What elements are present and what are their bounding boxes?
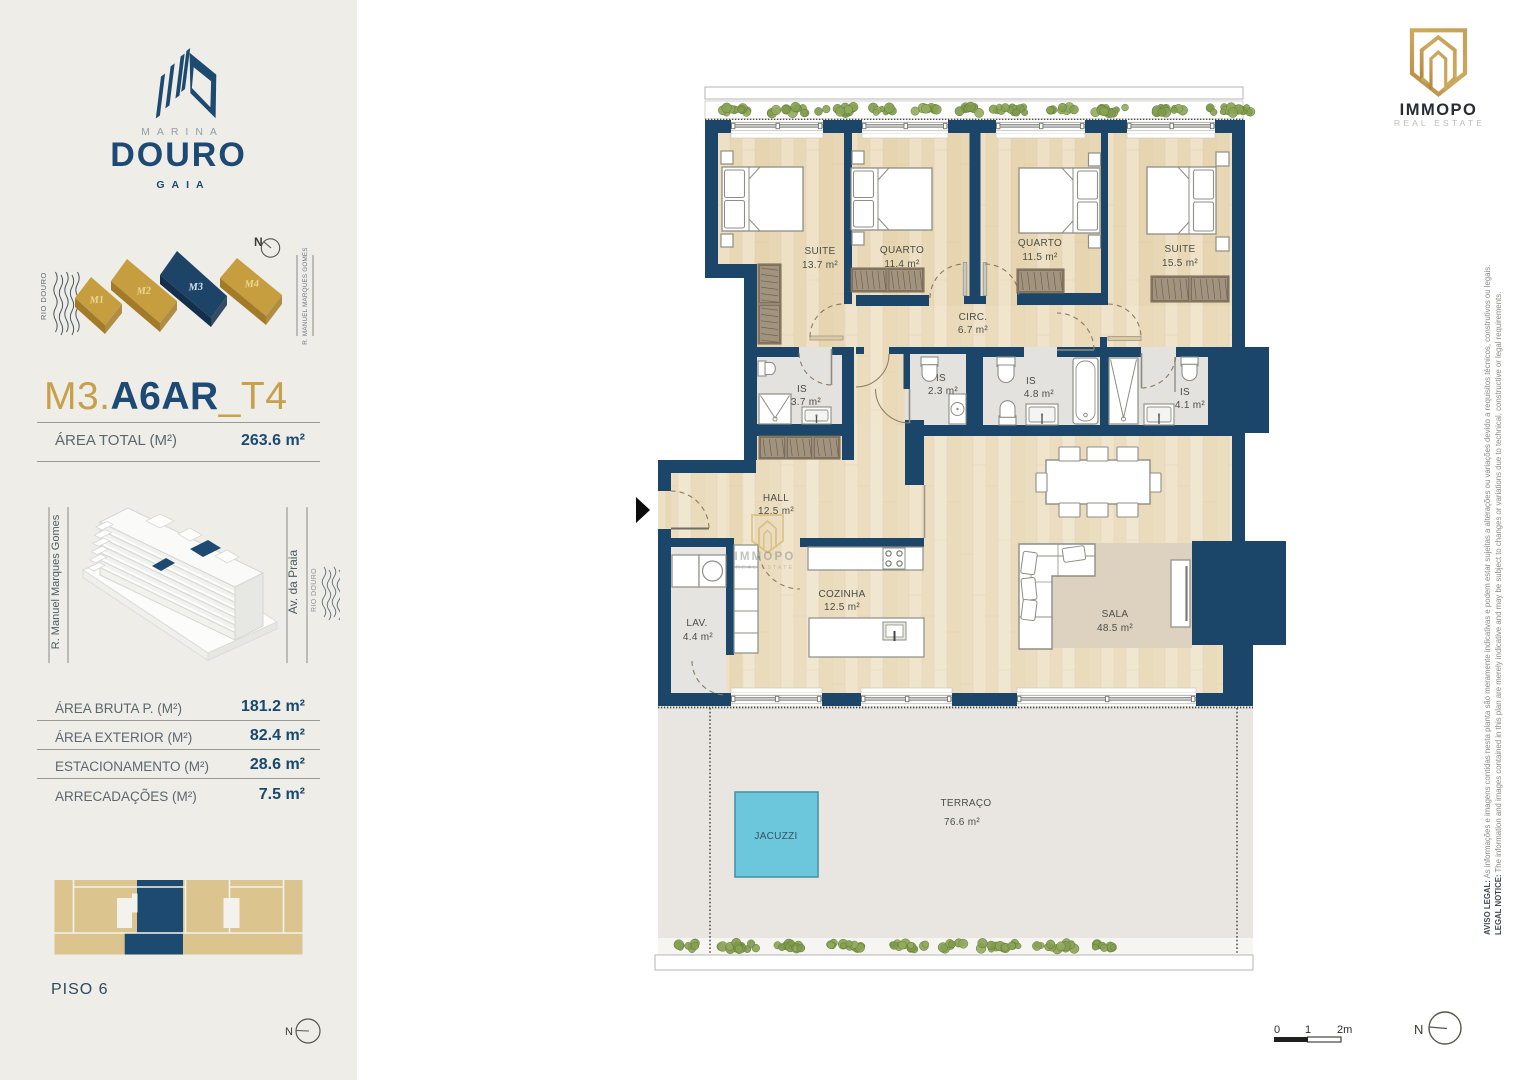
svg-text:4.8 m²: 4.8 m²	[1024, 389, 1055, 400]
svg-text:TERRAÇO: TERRAÇO	[941, 798, 992, 809]
svg-text:3.7 m²: 3.7 m²	[791, 397, 822, 408]
svg-text:IS: IS	[1180, 387, 1190, 398]
svg-text:IMMOPO: IMMOPO	[734, 551, 795, 563]
svg-text:IS: IS	[936, 373, 946, 384]
svg-text:76.6 m²: 76.6 m²	[944, 817, 980, 828]
svg-text:12.5 m²: 12.5 m²	[824, 602, 860, 613]
svg-text:1: 1	[1305, 1024, 1311, 1036]
svg-text:4.4 m²: 4.4 m²	[683, 632, 714, 643]
svg-text:12.5 m²: 12.5 m²	[758, 506, 794, 517]
svg-text:IS: IS	[1026, 376, 1036, 387]
svg-text:0: 0	[1274, 1024, 1280, 1036]
svg-text:2m: 2m	[1337, 1024, 1352, 1036]
svg-text:6.7 m²: 6.7 m²	[958, 325, 989, 336]
svg-text:QUARTO: QUARTO	[880, 245, 924, 256]
svg-text:15.5 m²: 15.5 m²	[1162, 258, 1198, 269]
svg-text:LAV.: LAV.	[686, 618, 707, 629]
svg-text:N: N	[1414, 1022, 1423, 1037]
svg-text:2.3 m²: 2.3 m²	[928, 386, 959, 397]
svg-text:CIRC.: CIRC.	[959, 312, 988, 323]
svg-text:QUARTO: QUARTO	[1018, 238, 1062, 249]
svg-text:11.5 m²: 11.5 m²	[1022, 252, 1058, 263]
svg-text:JACUZZI: JACUZZI	[754, 831, 797, 842]
svg-text:SUITE: SUITE	[805, 246, 836, 257]
svg-text:SALA: SALA	[1102, 609, 1129, 620]
svg-text:SUITE: SUITE	[1165, 244, 1196, 255]
svg-text:48.5 m²: 48.5 m²	[1097, 623, 1133, 634]
svg-text:REAL ESTATE: REAL ESTATE	[736, 565, 794, 571]
svg-text:HALL: HALL	[763, 493, 789, 504]
svg-text:11.4 m²: 11.4 m²	[884, 259, 920, 270]
svg-text:COZINHA: COZINHA	[818, 589, 865, 600]
svg-text:IS: IS	[797, 384, 807, 395]
svg-text:4.1 m²: 4.1 m²	[1175, 400, 1206, 411]
svg-text:13.7 m²: 13.7 m²	[802, 260, 838, 271]
